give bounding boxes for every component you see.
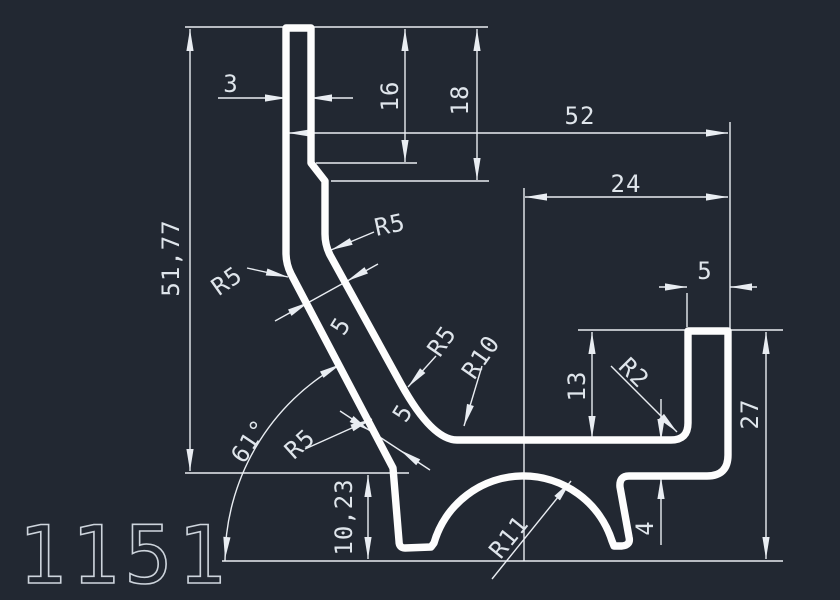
dim-label-16: 16 [376, 81, 404, 112]
dim-label-52: 52 [565, 102, 596, 130]
dim-label-1023: 10,23 [330, 478, 358, 555]
cad-viewport[interactable]: 3 16 18 52 24 51,77 5 R5 R5 5 R5 R10 13 … [0, 0, 840, 600]
cad-canvas: 3 16 18 52 24 51,77 5 R5 R5 5 R5 R10 13 … [0, 0, 840, 600]
dim-label-18: 18 [446, 85, 474, 116]
dim-label-27: 27 [736, 399, 764, 430]
part-number: 1151 [18, 509, 231, 600]
dim-label-5177: 51,77 [157, 219, 185, 296]
dim-label-13: 13 [563, 371, 591, 402]
dim-label-4: 4 [631, 520, 659, 535]
dim-label-wall-top: 3 [223, 70, 238, 98]
dim-label-24: 24 [611, 170, 642, 198]
dim-label-lip-5: 5 [697, 257, 712, 285]
